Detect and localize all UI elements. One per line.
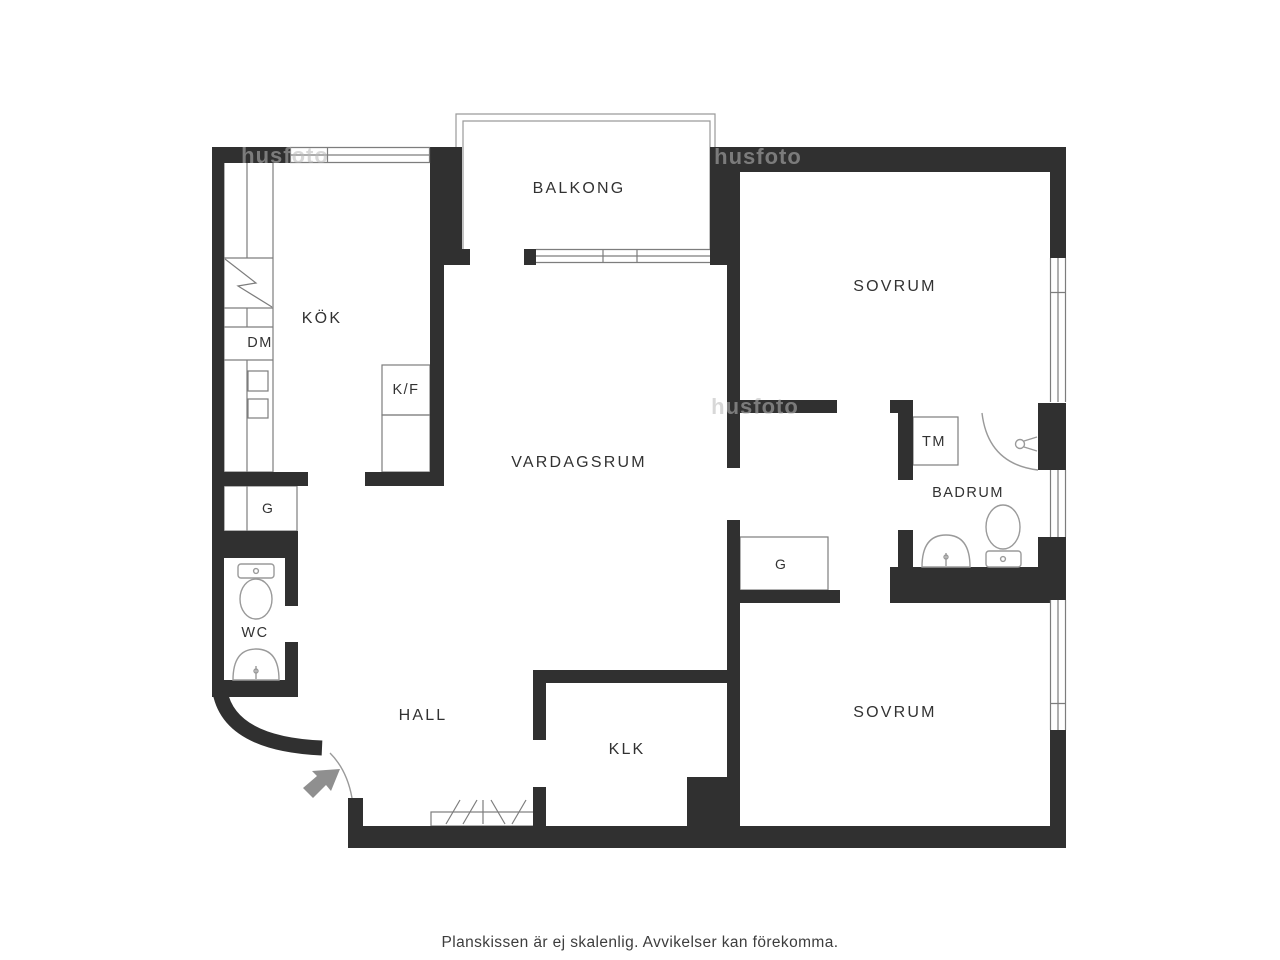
fixture-label-kf: K/F	[392, 382, 419, 398]
fixture-label-dm: DM	[247, 335, 273, 351]
kitchen-appliance-front	[248, 371, 268, 391]
room-label-wc: WC	[241, 625, 268, 641]
kitchen-counter	[224, 162, 273, 472]
bath-sink-icon	[922, 535, 970, 567]
window-balcony-door	[536, 249, 710, 263]
wardrobe-g-hall-box	[224, 486, 297, 531]
room-label-kok: KÖK	[302, 310, 342, 328]
room-label-vardagsrum: VARDAGSRUM	[511, 454, 647, 472]
entrance-arrow-icon	[303, 769, 340, 798]
room-label-sovrum-bottom: SOVRUM	[853, 704, 936, 722]
floorplan-page: husfoto husfoto husfoto BALKONG KÖK SOVR…	[0, 0, 1280, 960]
room-label-balkong: BALKONG	[533, 180, 626, 198]
room-label-sovrum-top: SOVRUM	[853, 278, 936, 296]
footer-disclaimer: Planskissen är ej skalenlig. Avvikelser …	[0, 934, 1280, 952]
fixture-label-g-bedroom: G	[775, 556, 787, 572]
kitchen-appliance-front	[248, 399, 268, 418]
shower-icon	[982, 413, 1038, 470]
hall-hanger-rail	[431, 800, 534, 826]
room-label-badrum: BADRUM	[932, 485, 1004, 501]
wc-toilet-icon	[238, 564, 274, 619]
window-kitchen-top	[290, 147, 430, 163]
fixture-label-g-hall: G	[262, 500, 274, 516]
room-label-klk: KLK	[609, 741, 646, 759]
floorplan-drawing	[0, 0, 1280, 960]
window-right-bathroom	[1050, 470, 1066, 537]
fixture-label-tm: TM	[922, 434, 946, 450]
room-label-hall: HALL	[399, 707, 448, 725]
bath-toilet-icon	[986, 505, 1021, 567]
window-right-bedroom-top	[1050, 258, 1066, 402]
wc-sink-icon	[233, 649, 279, 680]
window-right-bedroom-bottom	[1050, 600, 1066, 730]
stove-icon	[225, 259, 272, 307]
